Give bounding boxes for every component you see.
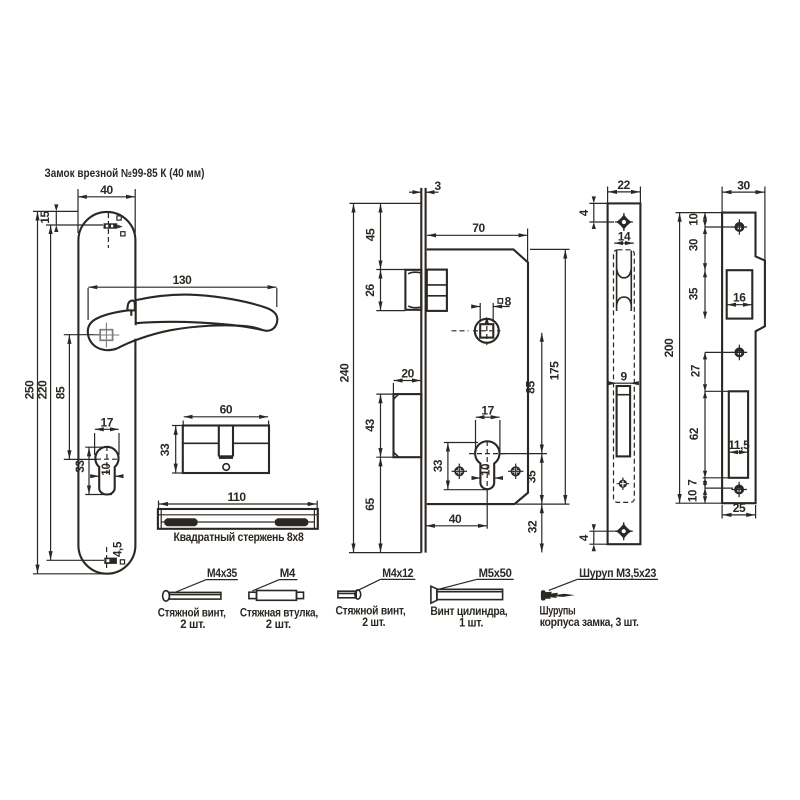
svg-text:62: 62 — [689, 428, 701, 440]
svg-text:1 шт.: 1 шт. — [459, 618, 483, 630]
svg-text:26: 26 — [363, 284, 377, 297]
svg-text:Стяжная втулка,: Стяжная втулка, — [240, 608, 318, 620]
svg-text:2 шт.: 2 шт. — [266, 619, 291, 631]
svg-text:4,5: 4,5 — [113, 541, 125, 557]
svg-text:32: 32 — [526, 520, 540, 533]
svg-text:30: 30 — [737, 178, 750, 192]
svg-text:11,5: 11,5 — [728, 438, 750, 452]
svg-text:33: 33 — [433, 460, 445, 472]
svg-text:М4х35: М4х35 — [207, 568, 238, 580]
svg-text:Стяжной винт,: Стяжной винт, — [158, 608, 226, 620]
svg-text:85: 85 — [54, 386, 68, 399]
svg-text:110: 110 — [228, 490, 247, 504]
svg-text:250: 250 — [23, 380, 37, 400]
svg-text:Стяжной винт,: Стяжной винт, — [336, 606, 406, 618]
svg-text:16: 16 — [733, 290, 746, 304]
svg-text:4: 4 — [579, 534, 591, 541]
svg-text:17: 17 — [101, 416, 114, 430]
svg-text:10: 10 — [480, 464, 492, 476]
svg-text:2 шт.: 2 шт. — [180, 619, 205, 631]
svg-text:4: 4 — [579, 209, 591, 216]
svg-text:17: 17 — [481, 403, 494, 417]
svg-text:45: 45 — [363, 228, 377, 241]
svg-text:20: 20 — [401, 367, 414, 381]
svg-text:22: 22 — [617, 178, 630, 192]
svg-text:85: 85 — [524, 381, 538, 394]
svg-text:220: 220 — [36, 380, 50, 400]
svg-text:10: 10 — [688, 490, 700, 502]
svg-text:9: 9 — [621, 370, 628, 384]
svg-text:М5х50: М5х50 — [479, 568, 512, 580]
svg-text:130: 130 — [173, 273, 193, 287]
svg-text:65: 65 — [363, 498, 377, 511]
svg-text:33: 33 — [158, 443, 172, 456]
svg-text:Винт цилиндра,: Винт цилиндра, — [430, 606, 507, 618]
svg-text:200: 200 — [662, 338, 676, 358]
svg-text:240: 240 — [338, 363, 352, 383]
svg-text:Шуруп М3,5х23: Шуруп М3,5х23 — [579, 568, 656, 580]
svg-text:175: 175 — [548, 361, 562, 381]
svg-text:14: 14 — [618, 229, 631, 243]
svg-text:40: 40 — [449, 512, 462, 526]
svg-text:30: 30 — [689, 239, 701, 251]
svg-text:43: 43 — [363, 419, 377, 432]
svg-text:корпуса замка, 3 шт.: корпуса замка, 3 шт. — [540, 617, 639, 629]
svg-text:35: 35 — [525, 470, 539, 483]
svg-text:35: 35 — [689, 287, 701, 300]
svg-text:8: 8 — [505, 295, 512, 309]
svg-text:7: 7 — [688, 479, 700, 485]
svg-text:40: 40 — [100, 183, 113, 197]
svg-text:М4: М4 — [280, 568, 296, 580]
svg-text:Замок врезной №99-85 К (40 м: Замок врезной №99-85 К (40 мм) — [45, 167, 205, 180]
svg-text:27: 27 — [691, 365, 703, 377]
svg-text:10: 10 — [101, 463, 113, 475]
svg-text:10: 10 — [689, 213, 701, 225]
svg-text:3: 3 — [435, 179, 442, 193]
svg-text:33: 33 — [75, 460, 87, 472]
svg-text:Шурупы: Шурупы — [540, 606, 576, 618]
svg-text:70: 70 — [472, 221, 485, 235]
svg-text:25: 25 — [733, 501, 746, 515]
svg-text:Квадратный стержень 8х8: Квадратный стержень 8х8 — [174, 532, 305, 544]
svg-text:15: 15 — [38, 211, 52, 224]
svg-text:2 шт.: 2 шт. — [362, 617, 385, 629]
svg-text:60: 60 — [220, 403, 233, 417]
svg-text:М4х12: М4х12 — [382, 568, 413, 580]
